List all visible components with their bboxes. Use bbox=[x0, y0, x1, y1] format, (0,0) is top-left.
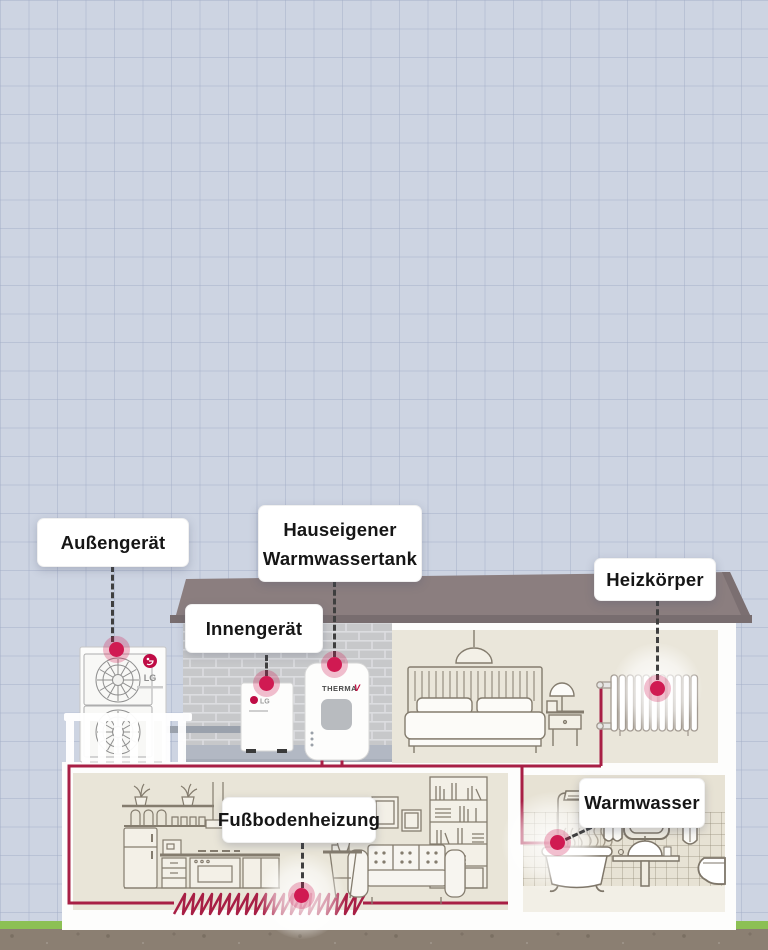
fridge-icon bbox=[124, 828, 157, 888]
label-text: Warmwasser bbox=[584, 792, 699, 814]
connector-radiator bbox=[656, 600, 659, 680]
indoor-unit: LG bbox=[241, 683, 293, 753]
coffee-machine-icon bbox=[163, 840, 181, 855]
kitchen-drawers-icon bbox=[162, 858, 186, 888]
picture-frame-icon bbox=[547, 701, 557, 712]
connector-water-tank bbox=[333, 581, 336, 657]
hotspot-underfloor[interactable] bbox=[294, 888, 309, 903]
jars-icon bbox=[172, 817, 205, 826]
label-text: Außengerät bbox=[61, 532, 166, 554]
hotspot-indoor-unit[interactable] bbox=[259, 676, 274, 691]
connector-outdoor-unit bbox=[111, 566, 114, 642]
sink-icon bbox=[613, 836, 679, 886]
plant-icon bbox=[134, 784, 150, 806]
therma-v-text: V bbox=[354, 683, 361, 693]
hotspot-radiator[interactable] bbox=[650, 681, 665, 696]
water-tank: THERMA V bbox=[305, 663, 369, 760]
connector-underfloor bbox=[301, 843, 304, 888]
label-text: Warmwassertank bbox=[263, 544, 417, 573]
toilet-icon bbox=[698, 858, 725, 884]
sofa bbox=[348, 845, 465, 904]
hotspot-outdoor-unit[interactable] bbox=[109, 642, 124, 657]
nightstand bbox=[546, 683, 584, 746]
lg-badge-icon bbox=[250, 696, 258, 704]
heat-pump-infographic: LG LG THERMA V bbox=[0, 0, 768, 950]
radiator-valve-icon bbox=[597, 682, 611, 729]
label-indoor-unit: Innengerät bbox=[185, 604, 323, 653]
label-text: Innengerät bbox=[206, 618, 303, 640]
hotspot-water-tank[interactable] bbox=[327, 657, 342, 672]
picture-frame-icon bbox=[402, 810, 421, 831]
label-hot-water: Warmwasser bbox=[579, 778, 705, 828]
pendant-lamp-icon bbox=[456, 630, 492, 663]
canisters-icon bbox=[131, 810, 166, 826]
label-outdoor-unit: Außengerät bbox=[37, 518, 189, 567]
bed bbox=[405, 667, 545, 753]
lg-logo-text: LG bbox=[144, 673, 157, 683]
label-underfloor-heating: Fußbodenheizung bbox=[222, 797, 376, 843]
connector-indoor-unit bbox=[265, 655, 268, 676]
label-text: Hauseigener bbox=[283, 515, 396, 544]
label-text: Fußbodenheizung bbox=[218, 809, 380, 831]
oven-icon bbox=[190, 858, 240, 888]
bedroom-furniture bbox=[405, 630, 584, 753]
label-radiator: Heizkörper bbox=[594, 558, 716, 601]
plant-icon bbox=[181, 784, 197, 806]
therma-logo-text: THERMA bbox=[322, 684, 357, 693]
label-text: Heizkörper bbox=[606, 569, 704, 591]
hotspot-hot-water[interactable] bbox=[550, 835, 565, 850]
label-water-tank: Hauseigener Warmwassertank bbox=[258, 505, 422, 582]
lg-logo-text: LG bbox=[260, 699, 270, 706]
